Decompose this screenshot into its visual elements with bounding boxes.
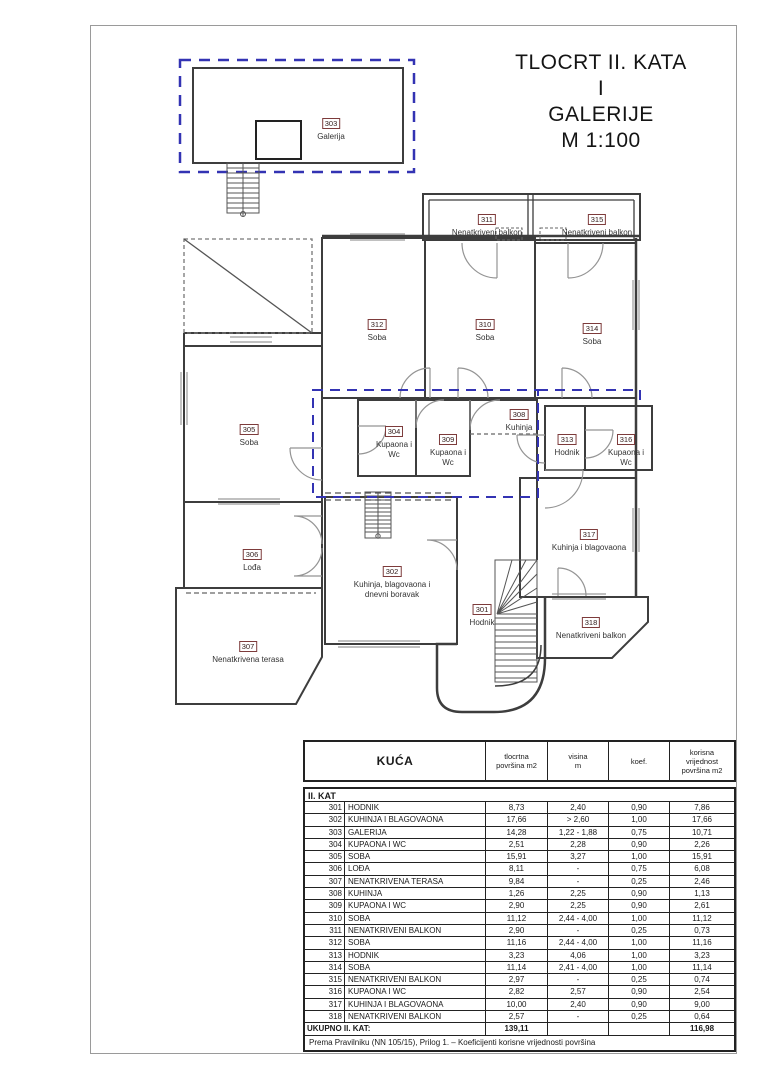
room-number-box: 306	[243, 549, 262, 560]
table-row: 304KUPAONA I WC2,512,280,902,26	[305, 839, 734, 851]
room-label-316: 316Kupaona i Wc	[608, 429, 644, 467]
room-number-box: 316	[617, 434, 636, 445]
table-row: 310SOBA11,122,44 - 4,001,0011,12	[305, 913, 734, 925]
room-label-302: 302Kuhinja, blagovaona i dnevni boravak	[354, 561, 431, 599]
room-label-305: 305Soba	[240, 419, 259, 448]
room-number-box: 305	[240, 424, 259, 435]
room-number-box: 301	[473, 604, 492, 615]
room-label-314: 314Soba	[583, 318, 602, 347]
table-row: 302KUHINJA I BLAGOVAONA17,66> 2,601,0017…	[305, 814, 734, 826]
table-row: 301HODNIK8,732,400,907,86	[305, 802, 734, 814]
room-name: Hodnik	[470, 618, 495, 628]
room-number-box: 310	[476, 319, 495, 330]
room-label-313: 313Hodnik	[555, 429, 580, 458]
room-label-318: 318Nenatkriveni balkon	[556, 612, 626, 641]
room-name: Soba	[476, 333, 495, 343]
room-number-box: 309	[439, 434, 458, 445]
plan-labels: 303Galerija311Nenatkriveni balkon315Nena…	[0, 0, 763, 740]
table-row: 308KUHINJA1,262,250,901,13	[305, 888, 734, 900]
room-label-306: 306Lođa	[243, 544, 262, 573]
table-row: 303GALERIJA14,281,22 - 1,880,7510,71	[305, 827, 734, 839]
table-row: 316KUPAONA I WC2,822,570,902,54	[305, 986, 734, 998]
room-label-315: 315Nenatkriveni balkon	[562, 209, 632, 238]
room-number-box: 307	[239, 641, 258, 652]
table-row: 306LOĐA8,11-0,756,08	[305, 863, 734, 875]
table-row: 315NENATKRIVENI BALKON2,97-0,250,74	[305, 974, 734, 986]
table-row: 311NENATKRIVENI BALKON2,90-0,250,73	[305, 925, 734, 937]
room-name: Kupaona i Wc	[376, 440, 412, 459]
total-label: UKUPNO II. KAT:	[305, 1023, 486, 1035]
table-row: 305SOBA15,913,271,0015,91	[305, 851, 734, 863]
header-kuca: KUĆA	[305, 742, 486, 780]
header-tlocrtna: tlocrtna površina m2	[486, 742, 548, 780]
room-label-301: 301Hodnik	[470, 599, 495, 628]
table-row: 314SOBA11,142,41 - 4,001,0011,14	[305, 962, 734, 974]
room-label-317: 317Kuhinja i blagovaona	[552, 524, 626, 553]
table-footnote: Prema Pravilniku (NN 105/15), Prilog 1. …	[305, 1036, 734, 1050]
room-number-box: 317	[580, 529, 599, 540]
room-label-307: 307Nenatkrivena terasa	[212, 636, 284, 665]
room-name: Kupaona i Wc	[608, 448, 644, 467]
room-label-312: 312Soba	[368, 314, 387, 343]
room-number-box: 315	[588, 214, 607, 225]
room-name: Soba	[240, 438, 259, 448]
room-name: Nenatkrivena terasa	[212, 655, 284, 665]
room-label-303: 303Galerija	[317, 113, 345, 142]
header-korisna: korisna vrijednost površina m2	[670, 742, 734, 780]
table-row: 318NENATKRIVENI BALKON2,57-0,250,64	[305, 1011, 734, 1023]
room-name: Kuhinja	[506, 423, 533, 433]
room-number-box: 311	[478, 214, 496, 225]
room-label-310: 310Soba	[476, 314, 495, 343]
room-name: Kupaona i Wc	[430, 448, 466, 467]
total-area: 139,11	[486, 1023, 548, 1035]
total-koef-empty	[609, 1023, 670, 1035]
table-row: 307NENATKRIVENA TERASA9,84-0,252,46	[305, 876, 734, 888]
table-row: 309KUPAONA I WC2,902,250,902,61	[305, 900, 734, 912]
room-number-box: 303	[322, 118, 341, 129]
room-name: Soba	[583, 337, 602, 347]
room-label-304: 304Kupaona i Wc	[376, 421, 412, 459]
area-table: KUĆA tlocrtna površina m2 visina m koef.…	[303, 740, 736, 1052]
drawing-sheet: { "title": { "lines": ["TLOCRT II. KATA"…	[0, 0, 763, 1080]
room-label-308: 308Kuhinja	[506, 404, 533, 433]
room-label-309: 309Kupaona i Wc	[430, 429, 466, 467]
table-section-label: II. KAT	[305, 789, 734, 802]
table-total-row: UKUPNO II. KAT: 139,11 116,98	[305, 1023, 734, 1036]
room-name: Nenatkriveni balkon	[452, 228, 522, 238]
total-value: 116,98	[670, 1023, 734, 1035]
header-visina: visina m	[548, 742, 609, 780]
room-number-box: 304	[385, 426, 404, 437]
room-name: Hodnik	[555, 448, 580, 458]
table-row: 313HODNIK3,234,061,003,23	[305, 950, 734, 962]
table-row: 312SOBA11,162,44 - 4,001,0011,16	[305, 937, 734, 949]
room-name: Nenatkriveni balkon	[556, 631, 626, 641]
header-koef: koef.	[609, 742, 670, 780]
room-number-box: 318	[582, 617, 601, 628]
table-header: KUĆA tlocrtna površina m2 visina m koef.…	[303, 740, 736, 782]
room-number-box: 314	[583, 323, 602, 334]
room-number-box: 313	[558, 434, 577, 445]
room-name: Kuhinja, blagovaona i dnevni boravak	[354, 580, 431, 599]
total-visina-empty	[548, 1023, 609, 1035]
room-name: Nenatkriveni balkon	[562, 228, 632, 238]
room-name: Soba	[368, 333, 387, 343]
room-label-311: 311Nenatkriveni balkon	[452, 209, 522, 238]
room-number-box: 302	[383, 566, 402, 577]
table-body: II. KAT 301HODNIK8,732,400,907,86302KUHI…	[303, 787, 736, 1052]
room-number-box: 308	[510, 409, 529, 420]
room-name: Lođa	[243, 563, 262, 573]
room-name: Kuhinja i blagovaona	[552, 543, 626, 553]
table-rows: 301HODNIK8,732,400,907,86302KUHINJA I BL…	[305, 802, 734, 1023]
room-number-box: 312	[368, 319, 387, 330]
room-name: Galerija	[317, 132, 345, 142]
table-row: 317KUHINJA I BLAGOVAONA10,002,400,909,00	[305, 999, 734, 1011]
